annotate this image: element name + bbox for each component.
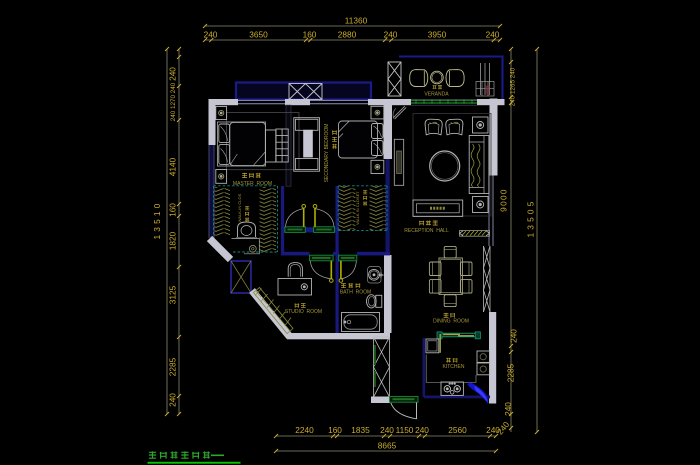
svg-text:WALK IN CLOSET: WALK IN CLOSET (355, 191, 360, 225)
svg-text:2560: 2560 (448, 425, 467, 435)
svg-text:STUDIO ROOM: STUDIO ROOM (285, 309, 322, 315)
svg-text:4140: 4140 (168, 157, 178, 176)
svg-text:RECEPTION HALL: RECEPTION HALL (404, 228, 449, 234)
svg-text:240: 240 (168, 67, 178, 81)
svg-text:3950: 3950 (428, 30, 447, 40)
svg-text:160: 160 (168, 203, 178, 217)
svg-text:SECONDARY BEDROOM: SECONDARY BEDROOM (324, 124, 330, 183)
svg-text:13505: 13505 (526, 198, 536, 237)
svg-text:240: 240 (204, 30, 218, 40)
svg-text:9000: 9000 (499, 188, 509, 212)
svg-text:1820: 1820 (168, 231, 178, 250)
svg-text:MASTER ROOM: MASTER ROOM (233, 181, 272, 187)
svg-text:240: 240 (168, 393, 178, 407)
svg-text:2285: 2285 (506, 363, 516, 382)
svg-text:1150: 1150 (396, 425, 414, 435)
svg-text:240 1265 240: 240 1265 240 (510, 67, 517, 106)
svg-text:3125: 3125 (168, 285, 178, 304)
svg-text:240 1270 240: 240 1270 240 (170, 82, 177, 121)
svg-text:DINING ROOM: DINING ROOM (433, 318, 469, 324)
svg-text:VERANDA: VERANDA (424, 92, 449, 98)
svg-text:240: 240 (509, 329, 519, 343)
svg-text:8665: 8665 (378, 441, 397, 451)
svg-text:WALK-IN CLOS: WALK-IN CLOS (237, 193, 242, 222)
svg-text:240: 240 (486, 30, 500, 40)
svg-text:160: 160 (303, 30, 317, 40)
svg-text:13510: 13510 (152, 200, 162, 239)
svg-text:2880: 2880 (338, 30, 357, 40)
svg-text:1835: 1835 (351, 425, 370, 435)
svg-text:3650: 3650 (249, 30, 268, 40)
svg-text:11360: 11360 (345, 16, 368, 26)
svg-text:2285: 2285 (168, 357, 178, 376)
svg-text:BATH ROOM: BATH ROOM (340, 290, 371, 296)
svg-text:2240: 2240 (295, 425, 314, 435)
svg-text:240: 240 (384, 30, 398, 40)
svg-text:240: 240 (380, 425, 394, 435)
svg-text:KITCHEN: KITCHEN (443, 364, 465, 370)
svg-text:240: 240 (415, 425, 429, 435)
svg-text:160: 160 (328, 425, 342, 435)
